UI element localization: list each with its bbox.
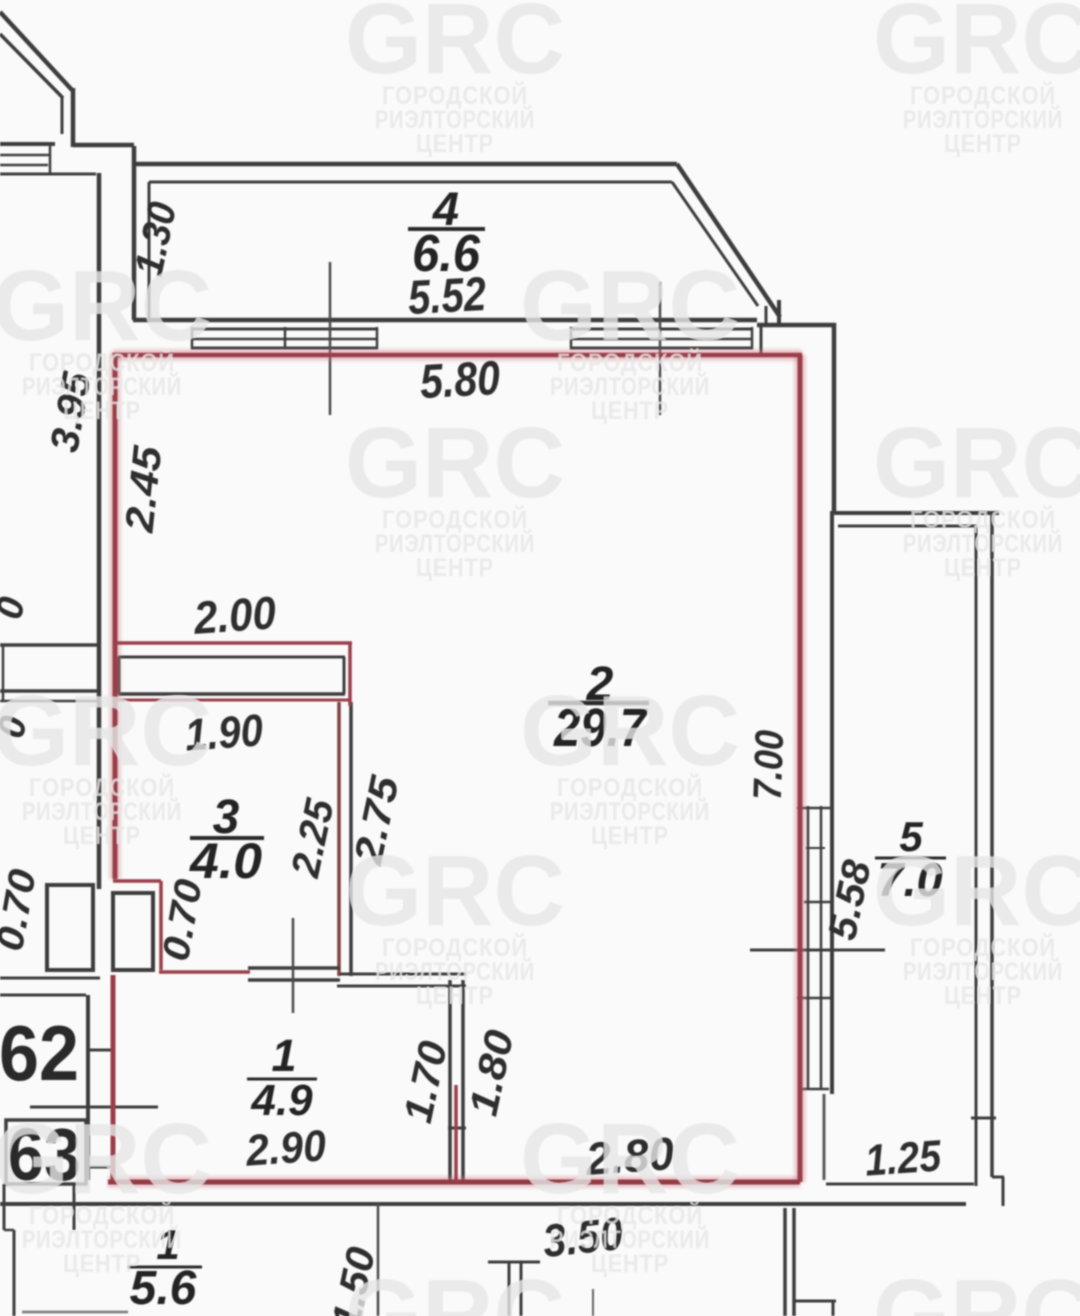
svg-text:4.0: 4.0 [189, 833, 262, 889]
svg-text:2.45: 2.45 [118, 443, 171, 535]
svg-text:2.25: 2.25 [283, 795, 343, 882]
svg-text:0.70: 0.70 [0, 866, 45, 954]
svg-text:4.9: 4.9 [250, 1076, 313, 1125]
svg-text:5.58: 5.58 [820, 856, 880, 944]
svg-text:5.80: 5.80 [419, 352, 502, 409]
svg-text:1.70: 1.70 [396, 1037, 456, 1126]
svg-text:5.52: 5.52 [407, 268, 488, 325]
svg-text:1.25: 1.25 [863, 1131, 943, 1185]
svg-text:1: 1 [271, 1030, 296, 1081]
svg-text:1.80: 1.80 [462, 1026, 523, 1119]
svg-text:0.70: 0.70 [155, 876, 211, 964]
svg-text:62: 62 [0, 1009, 79, 1097]
svg-text:0: 0 [0, 594, 34, 623]
svg-text:2.90: 2.90 [243, 1121, 328, 1176]
svg-text:2.00: 2.00 [191, 586, 278, 644]
svg-text:7.00: 7.00 [746, 729, 792, 800]
